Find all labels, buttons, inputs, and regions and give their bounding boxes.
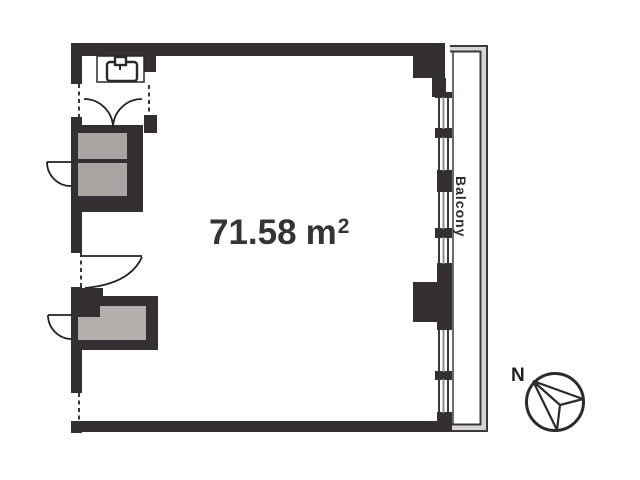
closet: [71, 125, 143, 212]
windows: [439, 97, 448, 413]
floor-plan-page: 71.58m2 Balcony N: [0, 0, 640, 480]
balcony-rail-band: [450, 45, 488, 432]
fixture-icon: [97, 56, 144, 82]
inward-door: [81, 256, 142, 288]
area-unit: m: [306, 213, 337, 252]
top-right-corner-block: [413, 53, 445, 78]
window-segment: [439, 137, 448, 171]
outward-door-lower: [48, 315, 72, 339]
window-mullion-2: [435, 228, 452, 238]
counter-corner-block: [71, 288, 103, 308]
window-mullion-1: [435, 128, 452, 138]
pillar: [413, 282, 443, 322]
bottom-wall: [71, 421, 452, 432]
alcove-right-post: [144, 115, 157, 133]
right-wall-chunk-1: [437, 170, 452, 192]
window-segment: [439, 97, 448, 129]
area-label: 71.58m2: [209, 213, 348, 253]
window-segment: [439, 192, 448, 229]
double-door-left-swing: [84, 99, 113, 128]
window-segment: [439, 379, 448, 413]
balcony: [450, 45, 488, 432]
left-wall-upper: [71, 43, 82, 84]
window-segment: [439, 237, 448, 264]
area-exponent: 2: [338, 215, 350, 238]
fixture-tab: [115, 57, 126, 65]
double-door-right-swing: [113, 99, 142, 128]
balcony-label: Balcony: [453, 176, 469, 237]
window-mullion-3: [435, 371, 452, 380]
outward-door-upper: [47, 162, 71, 186]
compass-icon: [527, 374, 584, 431]
top-wall: [71, 43, 445, 56]
closet-shelf-upper: [78, 133, 127, 159]
closet-shelf-lower: [78, 163, 127, 196]
balcony-rail-inner-line: [450, 52, 481, 425]
alcove-right-stub: [144, 55, 156, 72]
window-segment: [439, 330, 448, 372]
kitchen-counter: [71, 288, 158, 350]
right-wall-chunk-3: [437, 412, 452, 432]
area-value: 71.58: [209, 213, 297, 252]
compass-north-label: N: [511, 365, 525, 387]
